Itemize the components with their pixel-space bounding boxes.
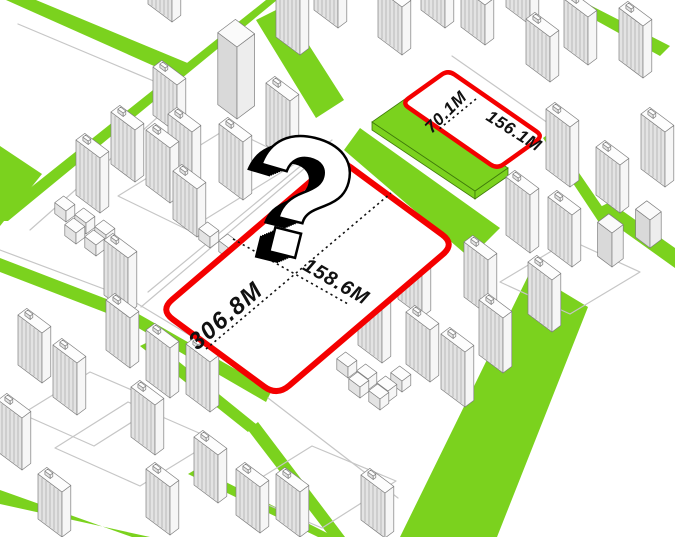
- site-plan-canvas: 306.8M 158.6M 70.1M 156.1M ?????????: [0, 0, 675, 537]
- site-plan: 306.8M 158.6M 70.1M 156.1M ?????????: [0, 0, 675, 537]
